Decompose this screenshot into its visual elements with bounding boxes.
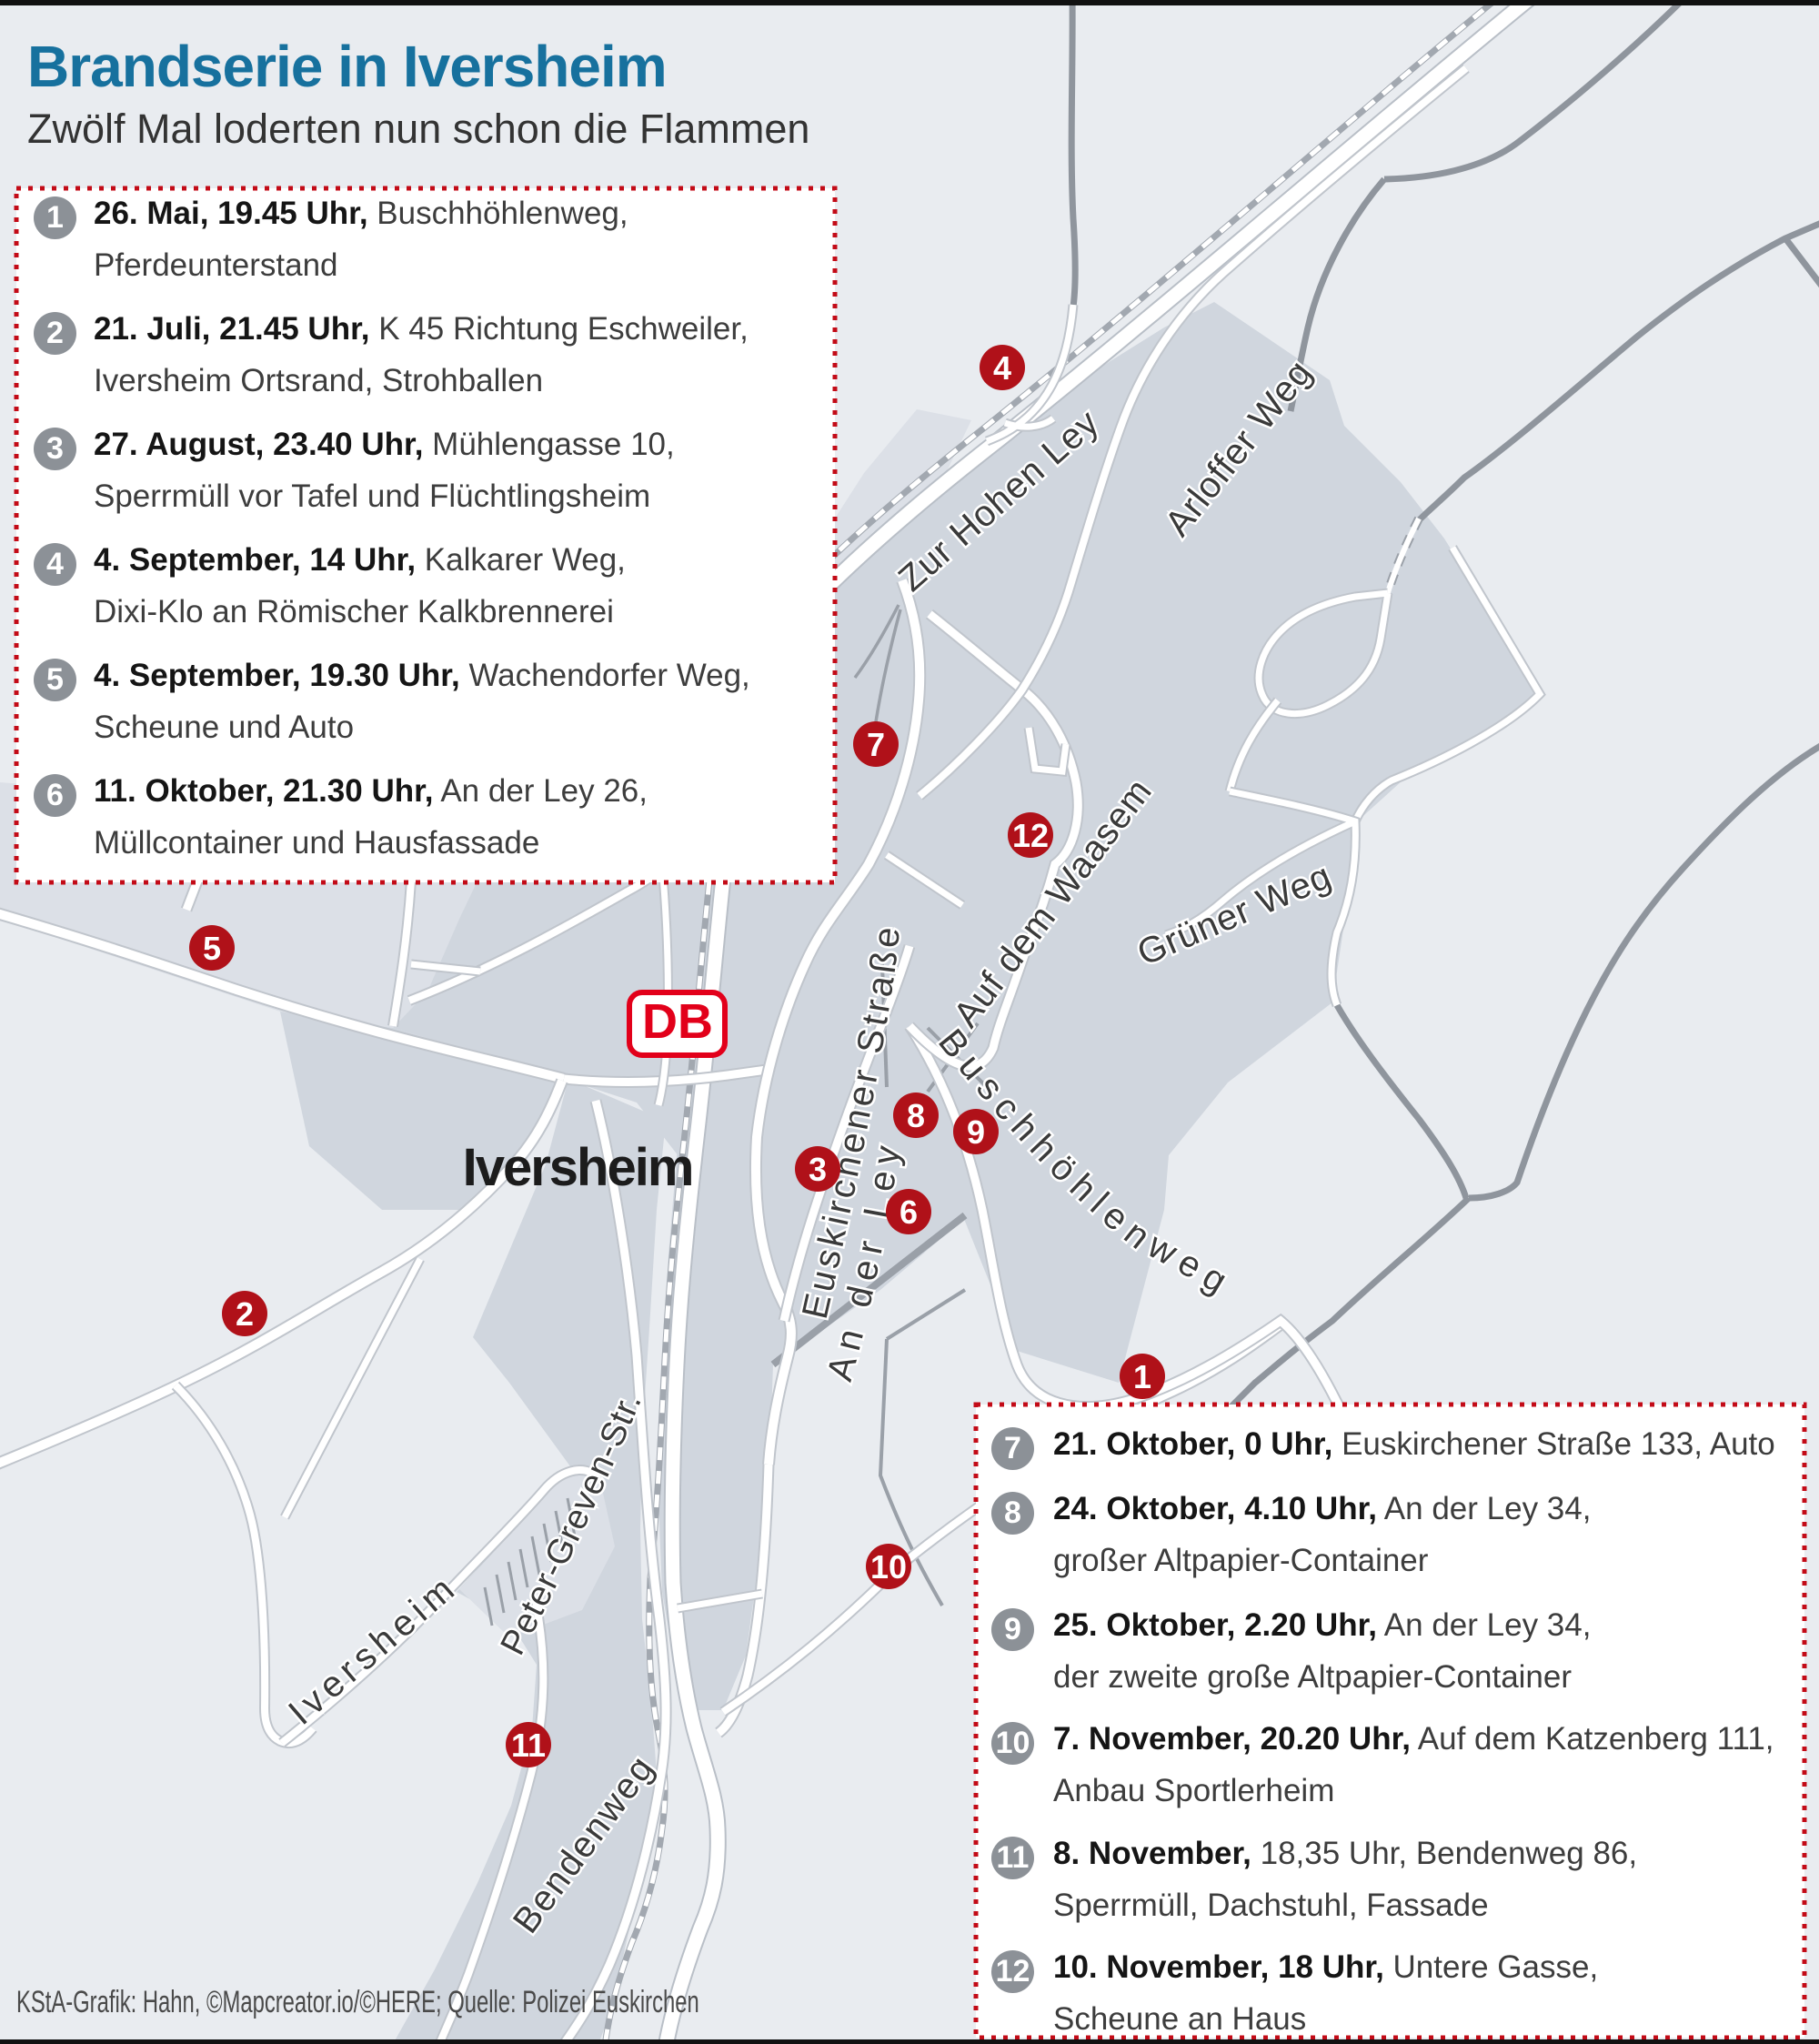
- svg-text:5: 5: [203, 930, 221, 967]
- svg-text:Iversheim: Iversheim: [463, 1138, 693, 1197]
- svg-text:1: 1: [1133, 1358, 1151, 1395]
- svg-text:6: 6: [899, 1193, 918, 1231]
- svg-text:8: 8: [907, 1097, 925, 1134]
- svg-text:4: 4: [993, 349, 1011, 387]
- svg-text:DB: DB: [642, 994, 713, 1049]
- svg-text:9: 9: [967, 1113, 985, 1151]
- svg-text:11: 11: [511, 1727, 546, 1764]
- svg-text:2: 2: [236, 1295, 254, 1333]
- svg-text:12: 12: [1012, 817, 1049, 854]
- svg-text:7: 7: [867, 726, 885, 763]
- svg-text:3: 3: [809, 1151, 827, 1188]
- svg-text:10: 10: [870, 1548, 907, 1586]
